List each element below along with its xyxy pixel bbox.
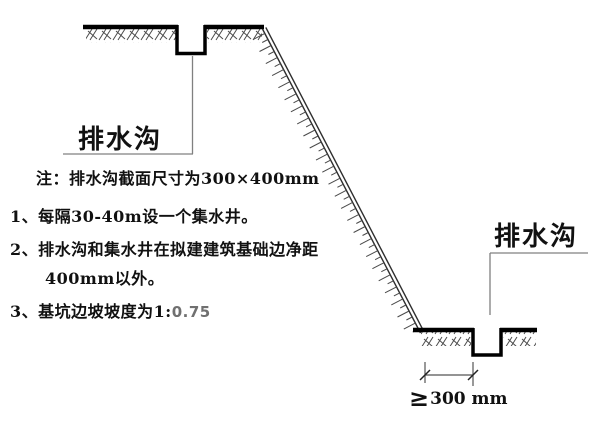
note-item-3-prefix: 3、基坑边坡坡度为1: <box>10 302 172 321</box>
slope-tick <box>287 88 293 91</box>
slope-tick <box>354 227 366 233</box>
slope-tick <box>363 233 369 236</box>
slope-tick <box>356 221 362 224</box>
earth-hatch-bottom-right <box>503 332 536 346</box>
slope-tick <box>385 287 397 293</box>
slope-tick <box>335 190 347 196</box>
slope-tick <box>281 76 287 79</box>
slope-ratio-value: 0.75 <box>172 303 211 321</box>
slope-tick <box>319 148 325 151</box>
slope-tick <box>400 305 406 308</box>
earth-hatch-top-right <box>207 29 262 43</box>
slope-tick <box>366 251 378 257</box>
slope-tick <box>297 118 309 124</box>
slope-tick <box>291 106 303 112</box>
top-ditch-notch <box>177 25 205 54</box>
slope-tick <box>303 130 315 136</box>
earth-hatch-top-left <box>86 29 176 43</box>
slope-tick <box>268 52 274 55</box>
note-item-2-line-2: 400mm以外。 <box>45 265 164 289</box>
dimension-label: ≥300 mm <box>409 383 508 412</box>
slope-tick <box>325 160 331 163</box>
greater-equal-symbol: ≥ <box>409 383 430 412</box>
slope-tick <box>375 257 381 260</box>
slope-tick <box>394 293 400 296</box>
slope-tick <box>312 136 318 139</box>
slope-tick <box>350 208 356 211</box>
note-item-3: 3、基坑边坡坡度为1:0.75 <box>10 298 211 322</box>
slope-tick <box>372 263 384 269</box>
slope-tick <box>300 112 306 115</box>
slope-tick <box>285 94 297 100</box>
slope-tick <box>262 40 268 43</box>
bottom-ditch-notch <box>473 328 501 355</box>
excavation-drainage-diagram: 排水沟 排水沟 注：排水沟截面尺寸为300×400mm 1、每隔30-40m设一… <box>0 0 605 428</box>
slope-tick <box>329 178 341 184</box>
slope-tick <box>260 46 272 52</box>
earth-hatch-bottom-left <box>421 332 471 346</box>
note-item-1: 1、每隔30-40m设一个集水井。 <box>10 203 258 227</box>
drain-ditch-label-bottom: 排水沟 <box>494 216 578 253</box>
slope-tick <box>369 245 375 248</box>
slope-tick <box>398 311 410 317</box>
slope-tick <box>391 299 403 305</box>
slope-tick <box>322 166 334 172</box>
dimension-value: 300 mm <box>430 389 507 409</box>
slope-tick <box>388 281 394 284</box>
slope-tick <box>360 239 372 245</box>
slope-tick <box>406 317 412 320</box>
slope-tick <box>306 124 312 127</box>
slope-tick <box>310 142 322 148</box>
slope-tick <box>341 202 353 208</box>
note-item-2-line-1: 2、排水沟和集水井在拟建建筑基础边净距 <box>10 236 319 260</box>
slope-tick <box>266 58 278 64</box>
slope-tick <box>278 82 290 88</box>
slope-tick <box>316 154 328 160</box>
slope-tick <box>337 184 343 187</box>
slope-tick <box>379 275 391 281</box>
slope-tick <box>344 196 350 199</box>
drain-ditch-label-top: 排水沟 <box>78 119 162 156</box>
slope-tick <box>347 214 359 220</box>
slope-tick <box>272 70 284 76</box>
slope-tick <box>331 172 337 175</box>
slope-tick <box>381 269 387 272</box>
note-title: 注：排水沟截面尺寸为300×400mm <box>36 165 320 189</box>
slope-tick <box>275 64 281 67</box>
slope-tick <box>294 100 300 103</box>
